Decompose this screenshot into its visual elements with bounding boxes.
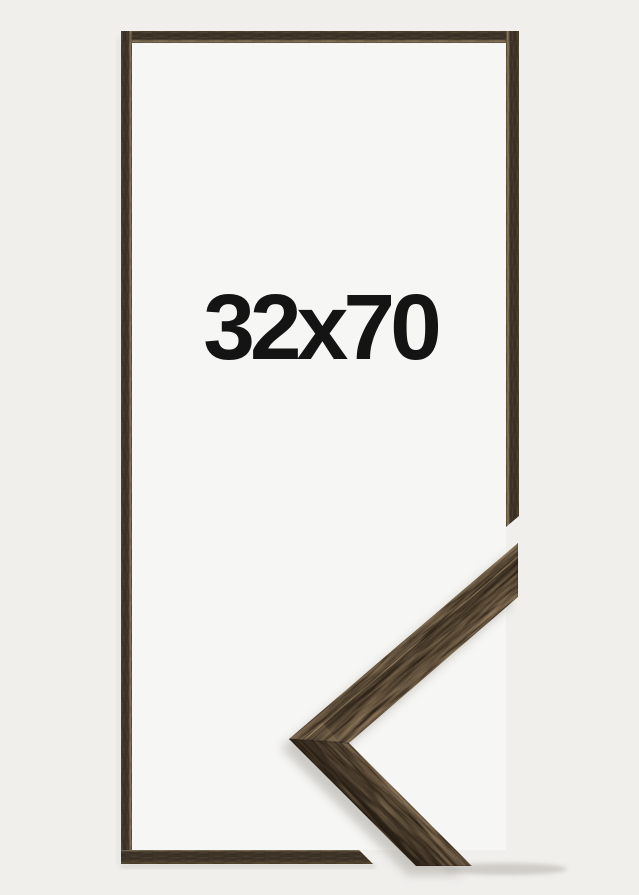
frame-left-bar-grain	[121, 31, 132, 864]
size-label: 32x70	[203, 275, 438, 379]
product-image: 32x70	[0, 0, 639, 895]
frame-top-bar-grain	[121, 31, 519, 43]
frame-bottom-shadow	[121, 864, 375, 868]
frame-bottom-bar-grain	[121, 850, 373, 864]
frame-right-bar-grain	[506, 31, 519, 527]
frame-left-shadow	[117, 38, 121, 864]
frame-photo: 32x70	[0, 0, 639, 895]
